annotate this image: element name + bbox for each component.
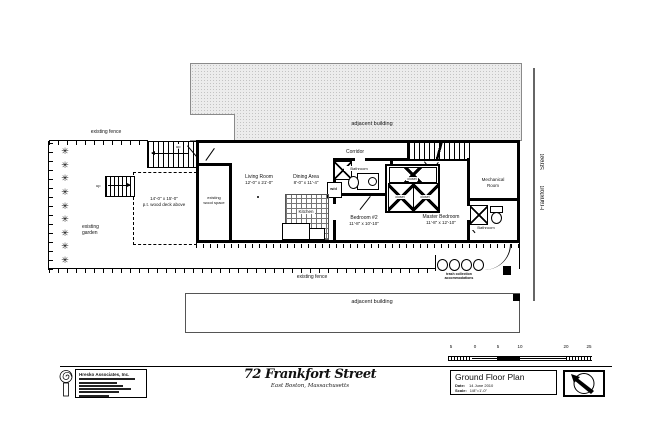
plant-icon: ✳	[61, 147, 69, 156]
plant-icon: ✳	[61, 161, 69, 170]
existing-fence-top	[49, 140, 148, 145]
sheet-title-box: Ground Floor Plan Date: 14 June 2010 Sca…	[450, 370, 557, 395]
wood-deck-outline	[133, 172, 197, 245]
adjacent-building-top-label: adjacent building	[320, 121, 424, 128]
scale-tick-2: 5	[492, 344, 504, 350]
project-title: 72 Frankfort Street	[230, 367, 390, 383]
adjacent-building-bottom-label: adjacent building	[322, 299, 422, 306]
garden-plants: ✳ ✳ ✳ ✳ ✳ ✳ ✳ ✳ ✳	[57, 147, 73, 265]
north-arrow-box	[563, 370, 605, 397]
plant-icon: ✳	[61, 256, 69, 265]
trash-bin-icon	[449, 259, 460, 271]
scale-bar-midline	[472, 358, 566, 359]
closet-label: closet	[406, 177, 417, 181]
mechanical-room-label: Mechanical Room	[468, 177, 518, 188]
kitchen-label-text: Kitchen	[297, 209, 314, 214]
scale-tick-1: 0	[469, 344, 481, 350]
bath-center-south-wall	[333, 193, 393, 196]
trash-bin-icon	[461, 259, 472, 271]
closet-label: closet	[419, 195, 430, 199]
corridor-wall-seg2	[365, 158, 409, 161]
existing-fence-bottom	[49, 268, 436, 273]
plant-icon: ✳	[61, 242, 69, 251]
scale-tick-3: 10	[514, 344, 526, 350]
master-bedroom-dims: 11'-8" x 12'-10"	[417, 220, 465, 226]
living-room-label: Living Room 12'-0" x 21'-0"	[239, 174, 279, 186]
vanity-icon	[357, 173, 379, 190]
dining-area-dims: 8'-0" x 11'-4"	[287, 180, 325, 186]
wood-deck-label: 14'-0" x 15'-0" p.t. wood deck above	[132, 196, 196, 207]
floor-plan-sheet: adjacent building Frankfort Street exist…	[0, 0, 651, 430]
washer-dryer-label: w/d	[327, 186, 340, 191]
sheet-scale-row: Scale: 1/8"=1'-0"	[455, 388, 552, 393]
firm-address-line	[79, 378, 135, 380]
scale-label: Scale:	[455, 388, 467, 393]
sheet-title: Ground Floor Plan	[455, 372, 552, 382]
adjacent-building-notch	[190, 114, 235, 140]
firm-address-line	[79, 395, 109, 397]
firm-address-line	[79, 388, 131, 390]
toilet-right-bowl-icon	[491, 212, 502, 224]
trash-enclosure-line	[435, 255, 436, 271]
kitchen-counter	[282, 223, 310, 240]
side-yard-line	[519, 243, 520, 269]
plant-icon: ✳	[61, 174, 69, 183]
bathroom-right-label: Bathroom	[470, 225, 502, 230]
shower-right-icon	[470, 205, 488, 225]
firm-info-box: Hresko Associates, Inc.	[75, 369, 147, 398]
bedroom2-label: Bedroom #2 11'-8" x 10'-10"	[342, 215, 386, 227]
existing-fence-bottom-label: existing fence	[292, 274, 332, 280]
street-edge-line	[533, 68, 535, 301]
stair-top-direction-arrow	[152, 153, 188, 154]
plant-icon: ✳	[61, 229, 69, 238]
bedroom2-dims: 11'-8" x 10'-10"	[342, 221, 386, 227]
plant-icon: ✳	[61, 202, 69, 211]
project-title-block: 72 Frankfort Street East Boston, Massach…	[230, 367, 390, 390]
trash-bin-icon	[473, 259, 484, 271]
wood-space-line2: wood space	[197, 200, 231, 205]
wood-deck-name: p.t. wood deck above	[132, 202, 196, 208]
closet-right-label: closet	[413, 195, 437, 199]
firm-address-line	[79, 391, 119, 393]
mechanical-line2: Room	[468, 183, 518, 189]
existing-fence-left	[48, 141, 53, 270]
kitchen-appliance	[309, 228, 325, 240]
firm-logo	[59, 369, 73, 398]
kitchen-label: Kitchen	[289, 209, 323, 215]
scale-tick-5: 25	[583, 344, 595, 350]
adjacent-building-top-hatch	[190, 63, 522, 141]
closet-left-label: closet	[388, 195, 412, 199]
master-bedroom-label: Master Bedroom 11'-8" x 12'-10"	[417, 214, 465, 226]
corridor-label: Corridor	[338, 149, 372, 155]
interior-stair	[407, 141, 470, 161]
existing-wood-space-label: existing wood space	[197, 195, 231, 205]
column-point	[257, 196, 259, 198]
stair-deck-up-label: up	[95, 183, 101, 188]
stair-deck-direction-arrow	[108, 185, 130, 186]
scale-bar-hatch-left	[448, 356, 472, 361]
toilet-center-icon	[348, 176, 359, 189]
trash-label: trash collection accommodations	[433, 272, 485, 281]
scale-tick-0: 5	[445, 344, 457, 350]
closet-label: closet	[394, 195, 405, 199]
south-wall-siding-ticks	[196, 244, 520, 248]
existing-garden-label: existing garden	[82, 224, 112, 237]
stair-top-up-label: up	[175, 144, 181, 149]
existing-fence-top-label: existing fence	[74, 129, 138, 135]
scale-bar-hatch-right	[566, 356, 592, 361]
street-name: Frankfort Street	[537, 95, 549, 210]
trash-bins	[437, 259, 484, 270]
plant-icon: ✳	[61, 215, 69, 224]
north-arrow-icon	[565, 372, 603, 395]
firm-address-line	[79, 385, 123, 387]
dining-area-label: Dining Area 8'-0" x 11'-4"	[287, 174, 325, 186]
trash-label-line2: accommodations	[433, 276, 485, 280]
plant-icon: ✳	[61, 188, 69, 197]
scale-tick-4: 20	[560, 344, 572, 350]
firm-address-line	[79, 382, 117, 384]
closet-top-label: closet	[389, 177, 435, 181]
mechanical-south-wall	[467, 198, 520, 201]
street-name-frankfort: Frankfort	[540, 186, 546, 210]
gate-post	[503, 266, 511, 275]
trash-bin-icon	[437, 259, 448, 271]
project-subtitle: East Boston, Massachusetts	[230, 383, 390, 390]
sink-icon	[368, 177, 377, 186]
street-name-street: Street	[540, 154, 546, 170]
volute-logo-icon	[59, 369, 73, 398]
adjacent-building-corner-post	[513, 294, 520, 301]
living-room-dims: 12'-0" x 21'-0"	[239, 180, 279, 186]
bedroom2-west-wall-seg2	[333, 220, 336, 243]
garden-label-line2: garden	[82, 230, 112, 236]
scale-value: 1/8"=1'-0"	[470, 388, 487, 393]
firm-name: Hresko Associates, Inc.	[79, 372, 143, 377]
bathroom-center-label: Bathroom	[344, 166, 374, 171]
